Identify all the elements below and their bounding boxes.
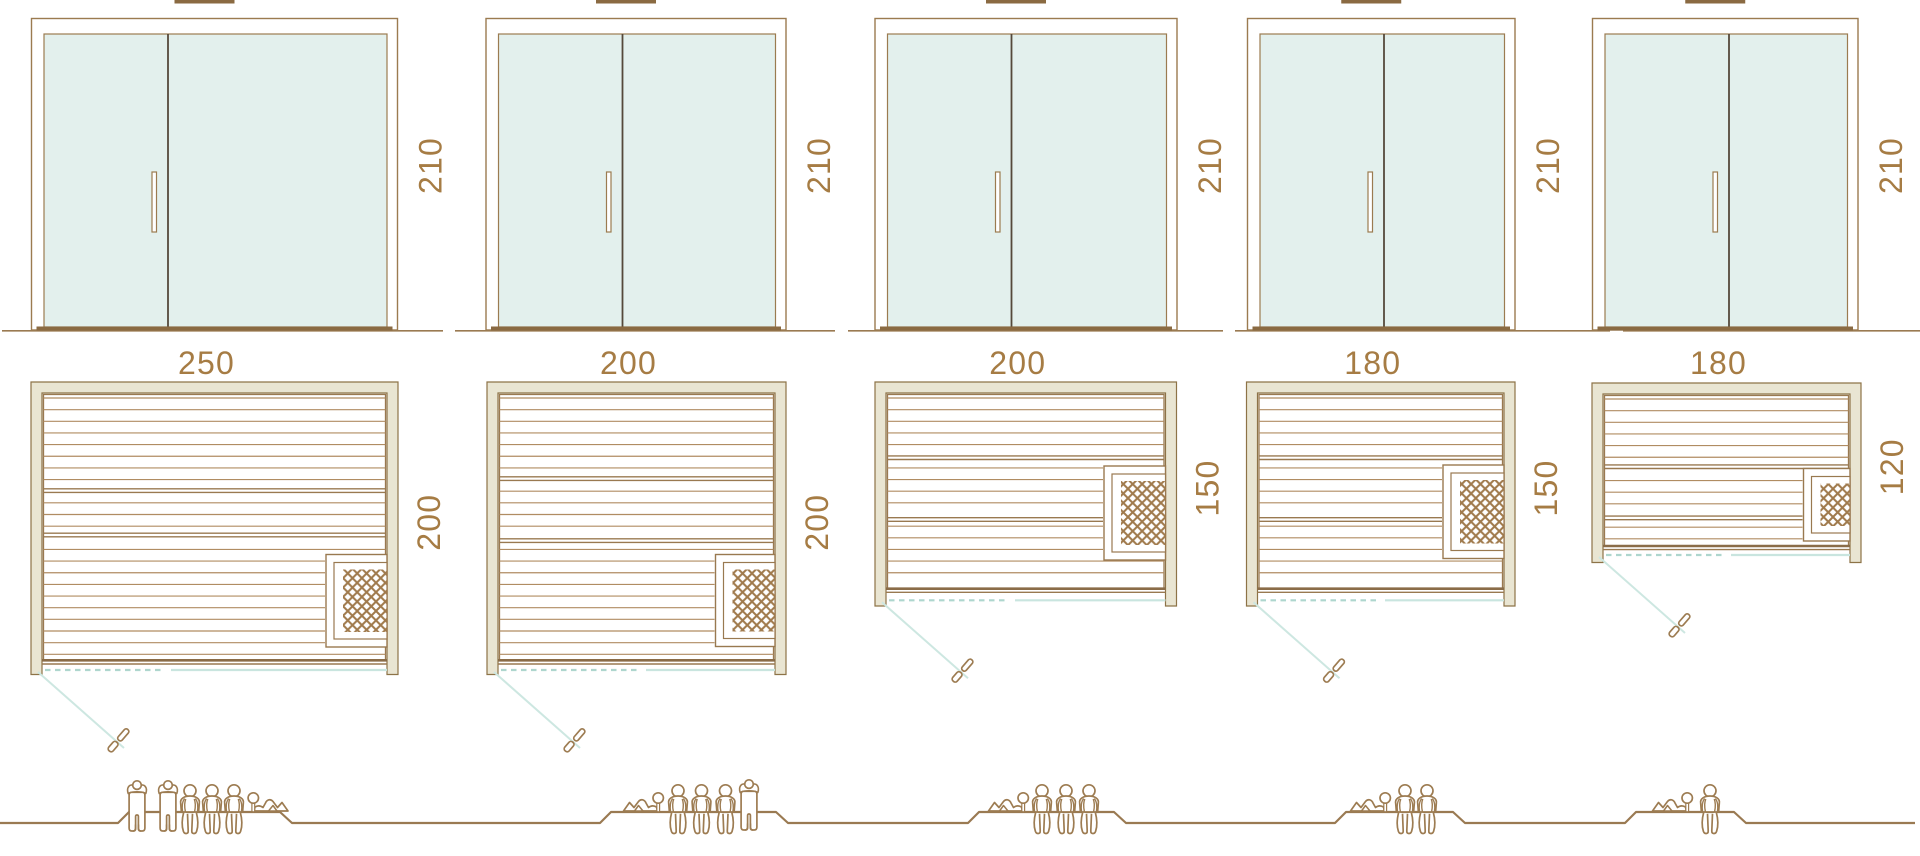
svg-text:210: 210 <box>1873 137 1909 194</box>
svg-text:180: 180 <box>1344 345 1401 381</box>
svg-text:200: 200 <box>600 345 657 381</box>
svg-text:120: 120 <box>1874 438 1910 495</box>
svg-text:180: 180 <box>1690 345 1747 381</box>
svg-text:200: 200 <box>799 494 835 551</box>
svg-text:150: 150 <box>1190 460 1226 517</box>
svg-text:210: 210 <box>801 137 837 194</box>
svg-text:150: 150 <box>1528 460 1564 517</box>
svg-text:210: 210 <box>1530 137 1566 194</box>
svg-text:200: 200 <box>411 494 447 551</box>
svg-text:250: 250 <box>178 345 235 381</box>
svg-text:200: 200 <box>989 345 1046 381</box>
svg-text:210: 210 <box>413 137 449 194</box>
svg-text:210: 210 <box>1192 137 1228 194</box>
